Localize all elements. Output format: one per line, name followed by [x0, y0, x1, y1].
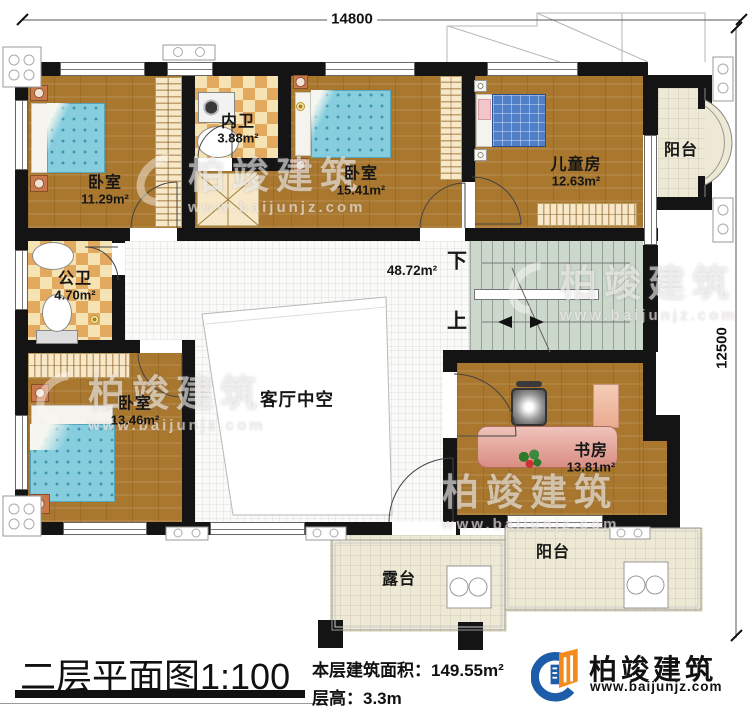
title-underline — [15, 690, 305, 698]
room-name: 露台 — [382, 571, 416, 589]
label-stairs-down: 下 — [447, 251, 467, 274]
dimension-top: 14800 — [327, 11, 377, 28]
room-name: 内卫 — [217, 113, 258, 131]
hall-area: 48.72m² — [387, 263, 437, 279]
closet-icon — [197, 173, 259, 226]
room-name: 卧室 — [111, 395, 159, 413]
floor-area-line: 本层建筑面积：149.55m² — [312, 656, 504, 681]
room-area: 3.88m² — [217, 132, 258, 147]
room-area: 4.70m² — [54, 289, 95, 304]
label-bedroom3: 卧室 13.46m² — [111, 395, 159, 428]
planter-icon — [447, 562, 668, 608]
room-name: 儿童房 — [550, 156, 601, 174]
label-stairs-up: 上 — [447, 311, 467, 334]
stairs-up: 上 — [447, 311, 467, 333]
floor-height-line: 层高：3.3m — [312, 684, 402, 709]
room-name: 阳台 — [664, 142, 698, 160]
room-name: 客厅中空 — [260, 389, 334, 409]
floor-plan-page: 柏竣建筑 www.baijunjz.com 柏竣建筑 www.baijunjz.… — [0, 0, 750, 715]
title-underline-thin — [0, 703, 322, 704]
room-name: 卧室 — [81, 174, 129, 192]
label-public-bath: 公卫 4.70m² — [54, 270, 95, 303]
label-terrace: 露台 — [382, 571, 416, 589]
plan-linework — [0, 0, 750, 715]
stairs-down: 下 — [447, 251, 467, 273]
room-name: 阳台 — [536, 544, 570, 562]
logo-icon — [531, 645, 587, 703]
room-name: 卧室 — [337, 165, 385, 183]
room-area: 13.81m² — [567, 461, 615, 476]
label-inner-bath: 内卫 3.88m² — [217, 113, 258, 146]
label-bedroom1: 卧室 11.29m² — [81, 174, 129, 207]
room-name: 公卫 — [54, 270, 95, 288]
label-kids-room: 儿童房 12.63m² — [550, 156, 601, 189]
label-study: 书房 13.81m² — [567, 442, 615, 475]
floor-area-value: 149.55m² — [431, 661, 504, 680]
logo-url: www.baijunjz.com — [590, 679, 723, 694]
room-name: 书房 — [567, 442, 615, 460]
dimension-right: 12500 — [714, 323, 731, 373]
room-area: 15.41m² — [337, 184, 385, 199]
floor-area-label: 本层建筑面积： — [312, 661, 431, 680]
floor-height-label: 层高： — [312, 689, 363, 708]
label-living-void: 客厅中空 — [260, 389, 334, 410]
label-balcony-bottom: 阳台 — [536, 544, 570, 562]
room-area: 13.46m² — [111, 414, 159, 429]
floor-height-value: 3.3m — [363, 689, 402, 708]
company-logo: 柏竣建筑 www.baijunjz.com — [531, 645, 741, 707]
label-bedroom2: 卧室 15.41m² — [337, 165, 385, 198]
room-area: 11.29m² — [81, 193, 129, 208]
label-balcony-right: 阳台 — [664, 142, 698, 160]
stair-markings — [470, 241, 630, 352]
bow-window — [705, 88, 732, 197]
room-area: 12.63m² — [550, 175, 601, 190]
label-hall-area: 48.72m² — [387, 263, 437, 279]
